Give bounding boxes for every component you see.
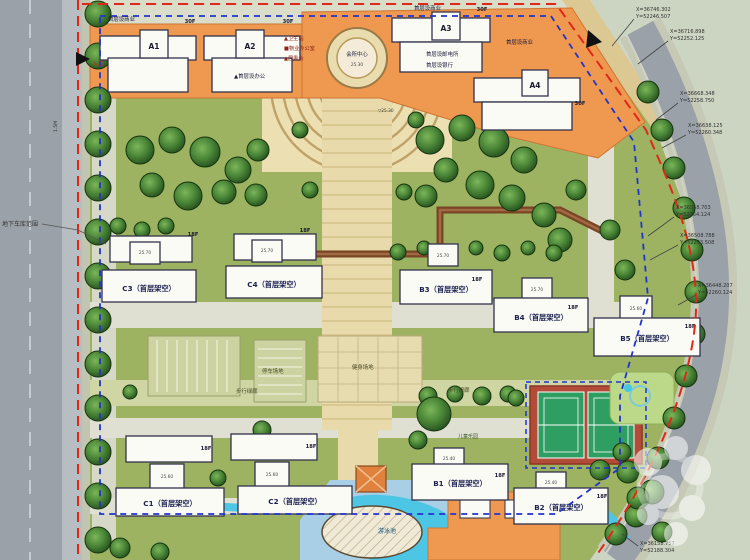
floors-c3: 18F bbox=[188, 232, 199, 238]
callout-6-y: Y=52263.508 bbox=[679, 240, 714, 246]
site-plan-svg: 会所中心 25.30 A1 A2 A3 A4 30F 30F 30F 30F bbox=[0, 0, 750, 560]
label-b5: B5（首层架空） bbox=[620, 334, 674, 343]
callout-5-y: Y=52264.124 bbox=[675, 212, 710, 218]
label-a3: A3 bbox=[440, 24, 451, 33]
callout-7-y: Y=52260.124 bbox=[697, 290, 732, 296]
callout-2-y: Y=52252.125 bbox=[669, 36, 704, 42]
children-label: 儿童乐园 bbox=[458, 433, 478, 440]
post-note: 首层设邮电所 bbox=[426, 50, 459, 58]
callout-1-x: X=36746.302 bbox=[636, 7, 671, 13]
shops-note-2: 首层设商业 bbox=[414, 4, 442, 12]
label-a4: A4 bbox=[529, 81, 540, 90]
pavilion bbox=[356, 466, 386, 492]
level-b1: 25.40 bbox=[443, 456, 456, 462]
level-b2: 25.40 bbox=[545, 480, 558, 486]
label-b1: B1（首层架空） bbox=[433, 479, 487, 488]
legend-line-3: ▲居委会 bbox=[284, 54, 304, 62]
parking-lot-1 bbox=[148, 336, 240, 396]
floors-a2: 30F bbox=[283, 19, 294, 25]
callout-4-y: Y=52260.348 bbox=[687, 130, 722, 136]
parking-label: 停车场地 bbox=[262, 367, 284, 375]
legend-line-2: ■物业办公室 bbox=[284, 44, 315, 52]
office-note: ▲首层设办公 bbox=[234, 72, 266, 80]
floors-b2: 18F bbox=[597, 494, 608, 500]
label-a2: A2 bbox=[244, 42, 255, 51]
callout-7-x: X=36448.207 bbox=[698, 283, 733, 289]
pool-label: 游泳池 bbox=[378, 527, 396, 535]
clubhouse-circle: 会所中心 25.30 bbox=[327, 28, 387, 88]
fitness-label: 健身场地 bbox=[352, 363, 374, 371]
callout-1-y: Y=52246.507 bbox=[635, 14, 670, 20]
floors-b4: 18F bbox=[568, 305, 579, 311]
callout-8-y: Y=52188.304 bbox=[639, 548, 674, 554]
floors-a1: 30F bbox=[185, 19, 196, 25]
label-c1: C1（首层架空） bbox=[143, 499, 196, 508]
level-c1: 25.60 bbox=[161, 474, 174, 480]
floors-b3: 18F bbox=[472, 277, 483, 283]
site-plan-image: 会所中心 25.30 A1 A2 A3 A4 30F 30F 30F 30F bbox=[0, 0, 750, 560]
left-road bbox=[0, 0, 90, 560]
callout-6-x: X=36508.788 bbox=[680, 233, 715, 239]
label-b4: B4（首层架空） bbox=[514, 313, 568, 322]
floors-b1: 18F bbox=[495, 473, 506, 479]
floors-c2: 18F bbox=[306, 444, 317, 450]
clubhouse-level: 25.30 bbox=[351, 62, 364, 68]
callout-2-x: X=36716.898 bbox=[670, 29, 705, 35]
building-a1 bbox=[100, 30, 196, 92]
road-width-label: 1.5M bbox=[53, 121, 59, 132]
callout-3-x: X=36668.348 bbox=[680, 91, 715, 97]
plaza-level: ▽25.30 bbox=[378, 108, 394, 114]
level-c2: 25.60 bbox=[266, 472, 279, 478]
label-c3: C3（首层架空） bbox=[122, 284, 175, 293]
level-b3: 25.70 bbox=[437, 253, 450, 259]
corridor-label-1: 步行绿廊 bbox=[236, 387, 258, 395]
label-c2: C2（首层架空） bbox=[268, 497, 321, 506]
garage-label: 地下车库范围 bbox=[2, 220, 38, 228]
floors-a4: 30F bbox=[575, 101, 586, 107]
building-a4 bbox=[474, 70, 580, 130]
label-b3: B3（首层架空） bbox=[419, 285, 473, 294]
floors-c1: 18F bbox=[201, 446, 212, 452]
legend-line-1: ▲卫生站 bbox=[284, 34, 304, 42]
floors-c4: 18F bbox=[300, 228, 311, 234]
level-c4: 25.70 bbox=[261, 248, 274, 254]
label-c4: C4（首层架空） bbox=[247, 280, 300, 289]
shops-note-1: 首层设商业 bbox=[108, 15, 136, 23]
level-b4: 25.70 bbox=[531, 287, 544, 293]
callout-5-x: X=36558.703 bbox=[676, 205, 711, 211]
level-b5: 25.60 bbox=[630, 306, 643, 312]
entrance-label: 入口 bbox=[92, 61, 104, 68]
label-a1: A1 bbox=[148, 42, 159, 51]
shops-note-3: 首层设商业 bbox=[506, 38, 534, 46]
callout-4-x: X=36638.125 bbox=[688, 123, 723, 129]
corridor-label-2: 步行绿廊 bbox=[448, 386, 470, 394]
bank-note: 首层设银行 bbox=[426, 61, 454, 69]
clubhouse-label: 会所中心 bbox=[346, 50, 368, 58]
callout-3-y: Y=52258.750 bbox=[679, 98, 714, 104]
level-c3: 25.70 bbox=[139, 250, 152, 256]
floors-a3: 30F bbox=[477, 7, 488, 13]
